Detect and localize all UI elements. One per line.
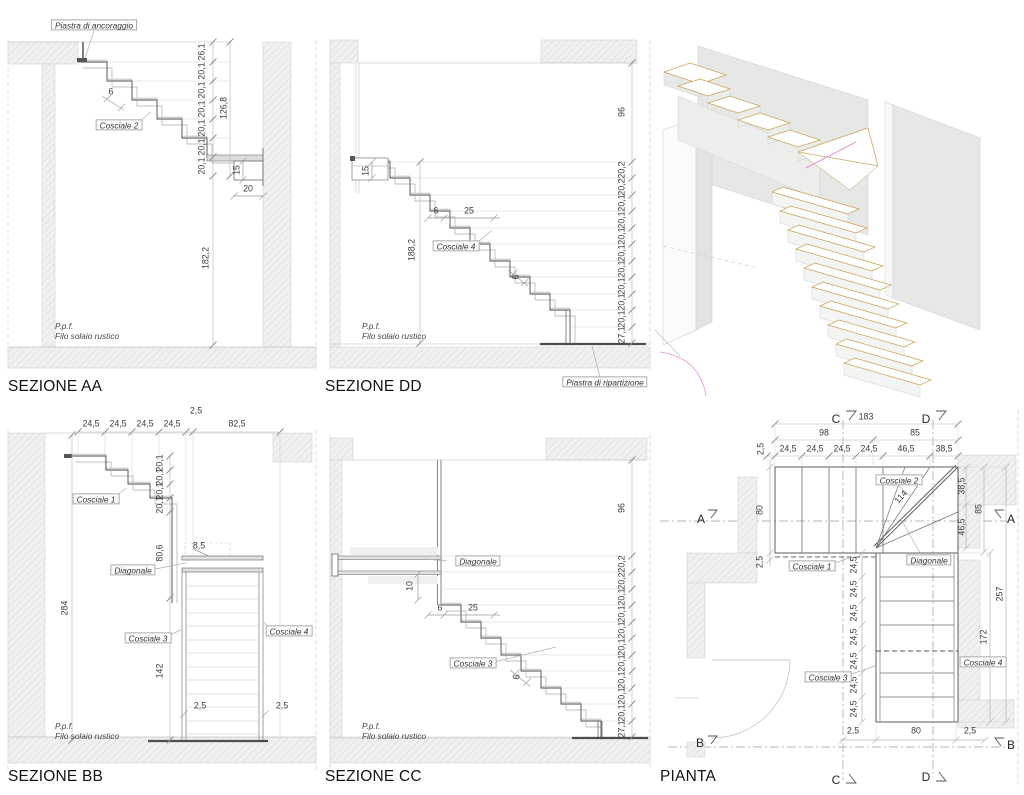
dim-cc-25: 25 [468, 604, 478, 613]
dim-bb-142: 142 [156, 664, 165, 679]
label-bb-cosciale-1: Cosciale 1 [73, 493, 120, 504]
dim-bb-step-3: 20,1 [156, 496, 165, 513]
text-cc-ppf: P.p.f. [362, 722, 380, 730]
text-aa-ppf: P.p.f. [55, 322, 73, 330]
label-piastra-ripartizione: Piastra di ripartizione [562, 376, 647, 387]
dim-pl-chain-2: 24,5 [850, 604, 859, 621]
dim-pl-257: 257 [996, 587, 1005, 602]
dim-pl-98: 98 [819, 429, 829, 438]
drawing-sheet: Piastra di ancoraggio 6 Cosciale 2 26,1 … [0, 0, 1024, 795]
dim-dd-188: 188,2 [408, 239, 417, 261]
label-pl-cosciale-4: Cosciale 4 [960, 656, 1007, 667]
dim-pl-chain-1: 24,5 [850, 580, 859, 597]
marker-c-top: C [832, 412, 841, 426]
dim-bb-top-1: 24,5 [109, 420, 126, 429]
dim-cc-riser-2: 20,1 [618, 588, 627, 605]
dim-dd-riser-4: 20,1 [618, 227, 627, 244]
marker-d-bottom: D [922, 770, 931, 784]
dim-cc-96: 96 [618, 503, 627, 513]
dim-pl-top-3: 24,5 [860, 445, 877, 454]
dim-dd-15: 15 [362, 166, 371, 176]
dim-pl-bottom-25r: 2,5 [964, 727, 976, 736]
dim-pl-85-right: 85 [975, 504, 984, 514]
label-aa-cosciale-2: Cosciale 2 [96, 119, 143, 130]
dim-pl-chain-3: 24,5 [850, 628, 859, 645]
title-sezione-aa: SEZIONE AA [8, 378, 102, 396]
dim-aa-riser-2: 20,1 [198, 81, 207, 98]
marker-b-right: B [1007, 738, 1015, 752]
dim-cc-riser-3: 20,1 [618, 605, 627, 622]
title-pianta: PIANTA [660, 768, 716, 786]
dim-pl-chain-6: 24,5 [850, 700, 859, 717]
marker-c-bottom: C [832, 773, 841, 787]
label-pl-cosciale-3: Cosciale 3 [805, 671, 852, 682]
dim-aa-riser-0: 26,1 [198, 43, 207, 60]
dim-bb-top-0: 24,5 [82, 420, 99, 429]
dim-aa-riser-6: 20,1 [198, 157, 207, 174]
dim-pl-top-0: 24,5 [779, 445, 796, 454]
section-aa-linework [8, 31, 316, 370]
dim-pl-25-topleft: 2,5 [757, 443, 766, 455]
text-bb-ppf: P.p.f. [55, 722, 73, 730]
dim-dd-riser-0: 20,2 [618, 161, 627, 178]
text-dd-filo: Filo solaio rustico [362, 332, 426, 340]
dim-pl-top-2: 24,5 [833, 445, 850, 454]
dim-cc-riser-6: 20,1 [618, 654, 627, 671]
dim-bb-806: 80,6 [156, 544, 165, 561]
dim-dd-riser-8: 20,1 [618, 293, 627, 310]
dim-cc-riser-9: 20,1 [618, 704, 627, 721]
text-cc-filo: Filo solaio rustico [362, 732, 426, 740]
dim-bb-284: 284 [61, 601, 70, 616]
title-sezione-cc: SEZIONE CC [325, 768, 422, 786]
dim-dd-riser-3: 20,1 [618, 211, 627, 228]
dim-cc-riser-5: 20,1 [618, 638, 627, 655]
dim-bb-top-3: 24,5 [163, 420, 180, 429]
dim-dd-riser-1: 20,2 [618, 178, 627, 195]
dim-pl-chain-0: 24,5 [850, 556, 859, 573]
marker-a-left: A [697, 512, 705, 526]
dim-cc-6b: 6 [513, 675, 522, 680]
label-pl-diagonale: Diagonale [906, 554, 951, 565]
label-bb-cosciale-4: Cosciale 4 [266, 625, 313, 636]
label-pl-cosciale-1: Cosciale 1 [789, 560, 836, 571]
label-bb-diagonale: Diagonale [110, 564, 155, 575]
title-sezione-dd: SEZIONE DD [325, 378, 422, 396]
dim-dd-riser-2: 20,1 [618, 194, 627, 211]
dim-bb-25-left: 2,5 [194, 702, 206, 711]
dim-aa-riser-1: 20,1 [198, 62, 207, 79]
dim-cc-6a: 6 [438, 604, 443, 613]
dim-dd-riser-7: 20,1 [618, 277, 627, 294]
dim-pl-85-top: 85 [910, 429, 920, 438]
section-cc-linework [330, 435, 650, 770]
label-bb-cosciale-3: Cosciale 3 [125, 632, 172, 643]
dim-dd-25: 25 [464, 207, 474, 216]
dim-aa-riser-5: 20,1 [198, 138, 207, 155]
dim-pl-top-1: 24,5 [806, 445, 823, 454]
text-dd-ppf: P.p.f. [362, 322, 380, 330]
dim-pl-80-left: 80 [756, 505, 765, 515]
dim-pl-465: 46,5 [958, 518, 967, 535]
dim-bb-top-2: 24,5 [136, 420, 153, 429]
dim-aa-15: 15 [233, 165, 242, 175]
dim-cc-riser-7: 20,1 [618, 671, 627, 688]
dim-cc-riser-10: 27,1 [618, 720, 627, 737]
dim-bb-25-top: 2,5 [190, 407, 202, 416]
dim-cc-10: 10 [406, 581, 415, 591]
label-cc-diagonale: Diagonale [455, 555, 500, 566]
dim-cc-riser-1: 20,2 [618, 572, 627, 589]
dim-dd-riser-5: 20,1 [618, 244, 627, 261]
label-pl-cosciale-2: Cosciale 2 [876, 474, 923, 485]
dim-aa-total: 126,8 [220, 97, 229, 119]
dim-cc-riser-8: 20,1 [618, 687, 627, 704]
dim-pl-183: 183 [859, 413, 874, 422]
dim-aa-riser-3: 20,1 [198, 100, 207, 117]
dim-dd-6a: 6 [434, 207, 439, 216]
marker-d-top: D [922, 412, 931, 426]
dim-pl-top-4: 46,5 [897, 445, 914, 454]
dim-pl-25-left: 2,5 [756, 556, 765, 568]
dim-aa-riser-4: 20,1 [198, 119, 207, 136]
title-sezione-bb: SEZIONE BB [8, 768, 103, 786]
dim-cc-riser-4: 20,1 [618, 621, 627, 638]
label-dd-cosciale-4: Cosciale 4 [433, 240, 480, 251]
dim-dd-96: 96 [618, 107, 627, 117]
label-cc-cosciale-3: Cosciale 3 [450, 657, 497, 668]
dim-pl-top-5: 38,5 [935, 445, 952, 454]
dim-dd-6b: 6 [512, 275, 521, 280]
dim-pl-385: 38,5 [958, 477, 967, 494]
dim-pl-172: 172 [980, 630, 989, 645]
dim-aa-6: 6 [109, 88, 114, 97]
dim-pl-chain-4: 24,5 [850, 652, 859, 669]
axonometric-view [655, 46, 980, 397]
dim-cc-riser-0: 20,2 [618, 555, 627, 572]
dim-pl-bottom-25l: 2,5 [847, 727, 859, 736]
marker-b-left: B [696, 736, 704, 750]
text-bb-filo: Filo solaio rustico [55, 732, 119, 740]
text-aa-filo: Filo solaio rustico [55, 332, 119, 340]
dim-dd-riser-10: 27,1 [618, 326, 627, 343]
dim-bb-25-right: 2,5 [276, 702, 288, 711]
label-piastra-ancoraggio: Piastra di ancoraggio [51, 19, 137, 30]
dim-aa-182: 182,2 [202, 247, 211, 269]
dim-dd-riser-6: 20,1 [618, 260, 627, 277]
dim-aa-20: 20 [243, 185, 253, 194]
dim-bb-85: 8,5 [193, 542, 205, 551]
marker-a-right: A [1007, 512, 1015, 526]
dim-bb-825: 82,5 [228, 420, 245, 429]
dim-pl-bottom-80: 80 [911, 727, 921, 736]
dim-dd-riser-9: 20,1 [618, 310, 627, 327]
